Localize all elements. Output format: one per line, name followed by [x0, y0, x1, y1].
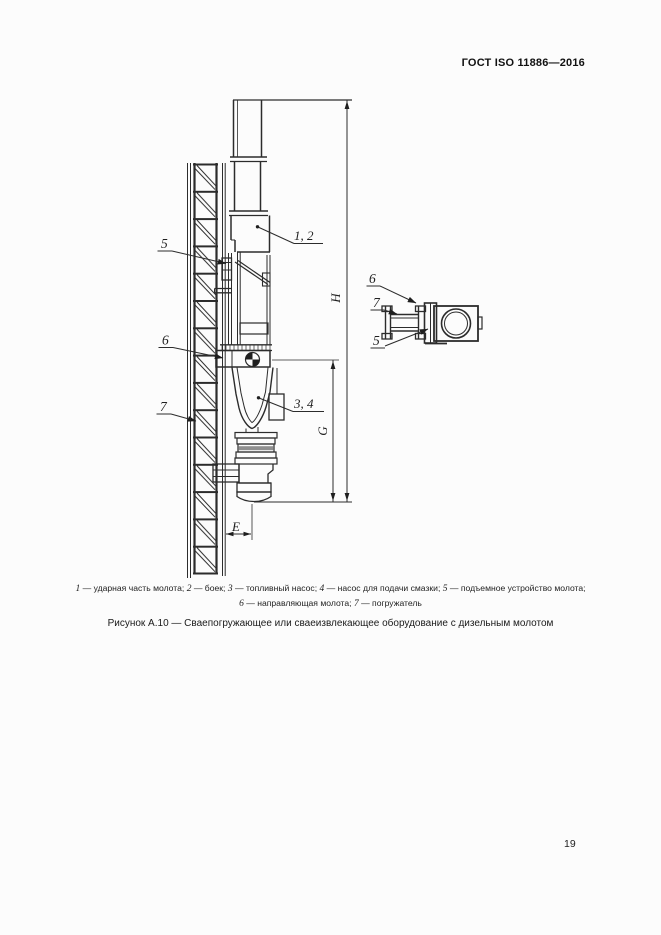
figure-a10-drawing: H G E 1, 2 3, 4 5 6 7	[0, 0, 661, 645]
part-label-5: 5	[161, 236, 168, 251]
detail-view: 6 7 5	[367, 271, 483, 348]
page-number: 19	[564, 838, 576, 850]
figure-caption: Рисунок А.10 — Сваепогружающее или сваеи…	[0, 618, 661, 629]
detail-label-7: 7	[373, 295, 381, 310]
figure-legend: 1 — ударная часть молота; 2 — боек; 3 — …	[20, 582, 641, 611]
dim-label-G: G	[315, 426, 330, 436]
detail-label-6: 6	[369, 271, 376, 286]
detail-label-5: 5	[373, 333, 380, 348]
part-label-3-4: 3, 4	[293, 396, 314, 411]
dimension-labels: H G E	[231, 293, 343, 534]
legend-line: 1 — ударная часть молота; 2 — боек; 3 — …	[20, 582, 641, 597]
dimension-lines	[226, 100, 352, 540]
mast-leader	[188, 163, 226, 578]
dim-label-E: E	[231, 519, 240, 534]
part-label-6: 6	[162, 333, 169, 348]
part-label-7: 7	[160, 399, 168, 414]
part-label-1-2: 1, 2	[294, 228, 314, 243]
dim-label-H: H	[328, 293, 343, 304]
legend-line: 6 — направляющая молота; 7 — погружатель	[20, 597, 641, 612]
